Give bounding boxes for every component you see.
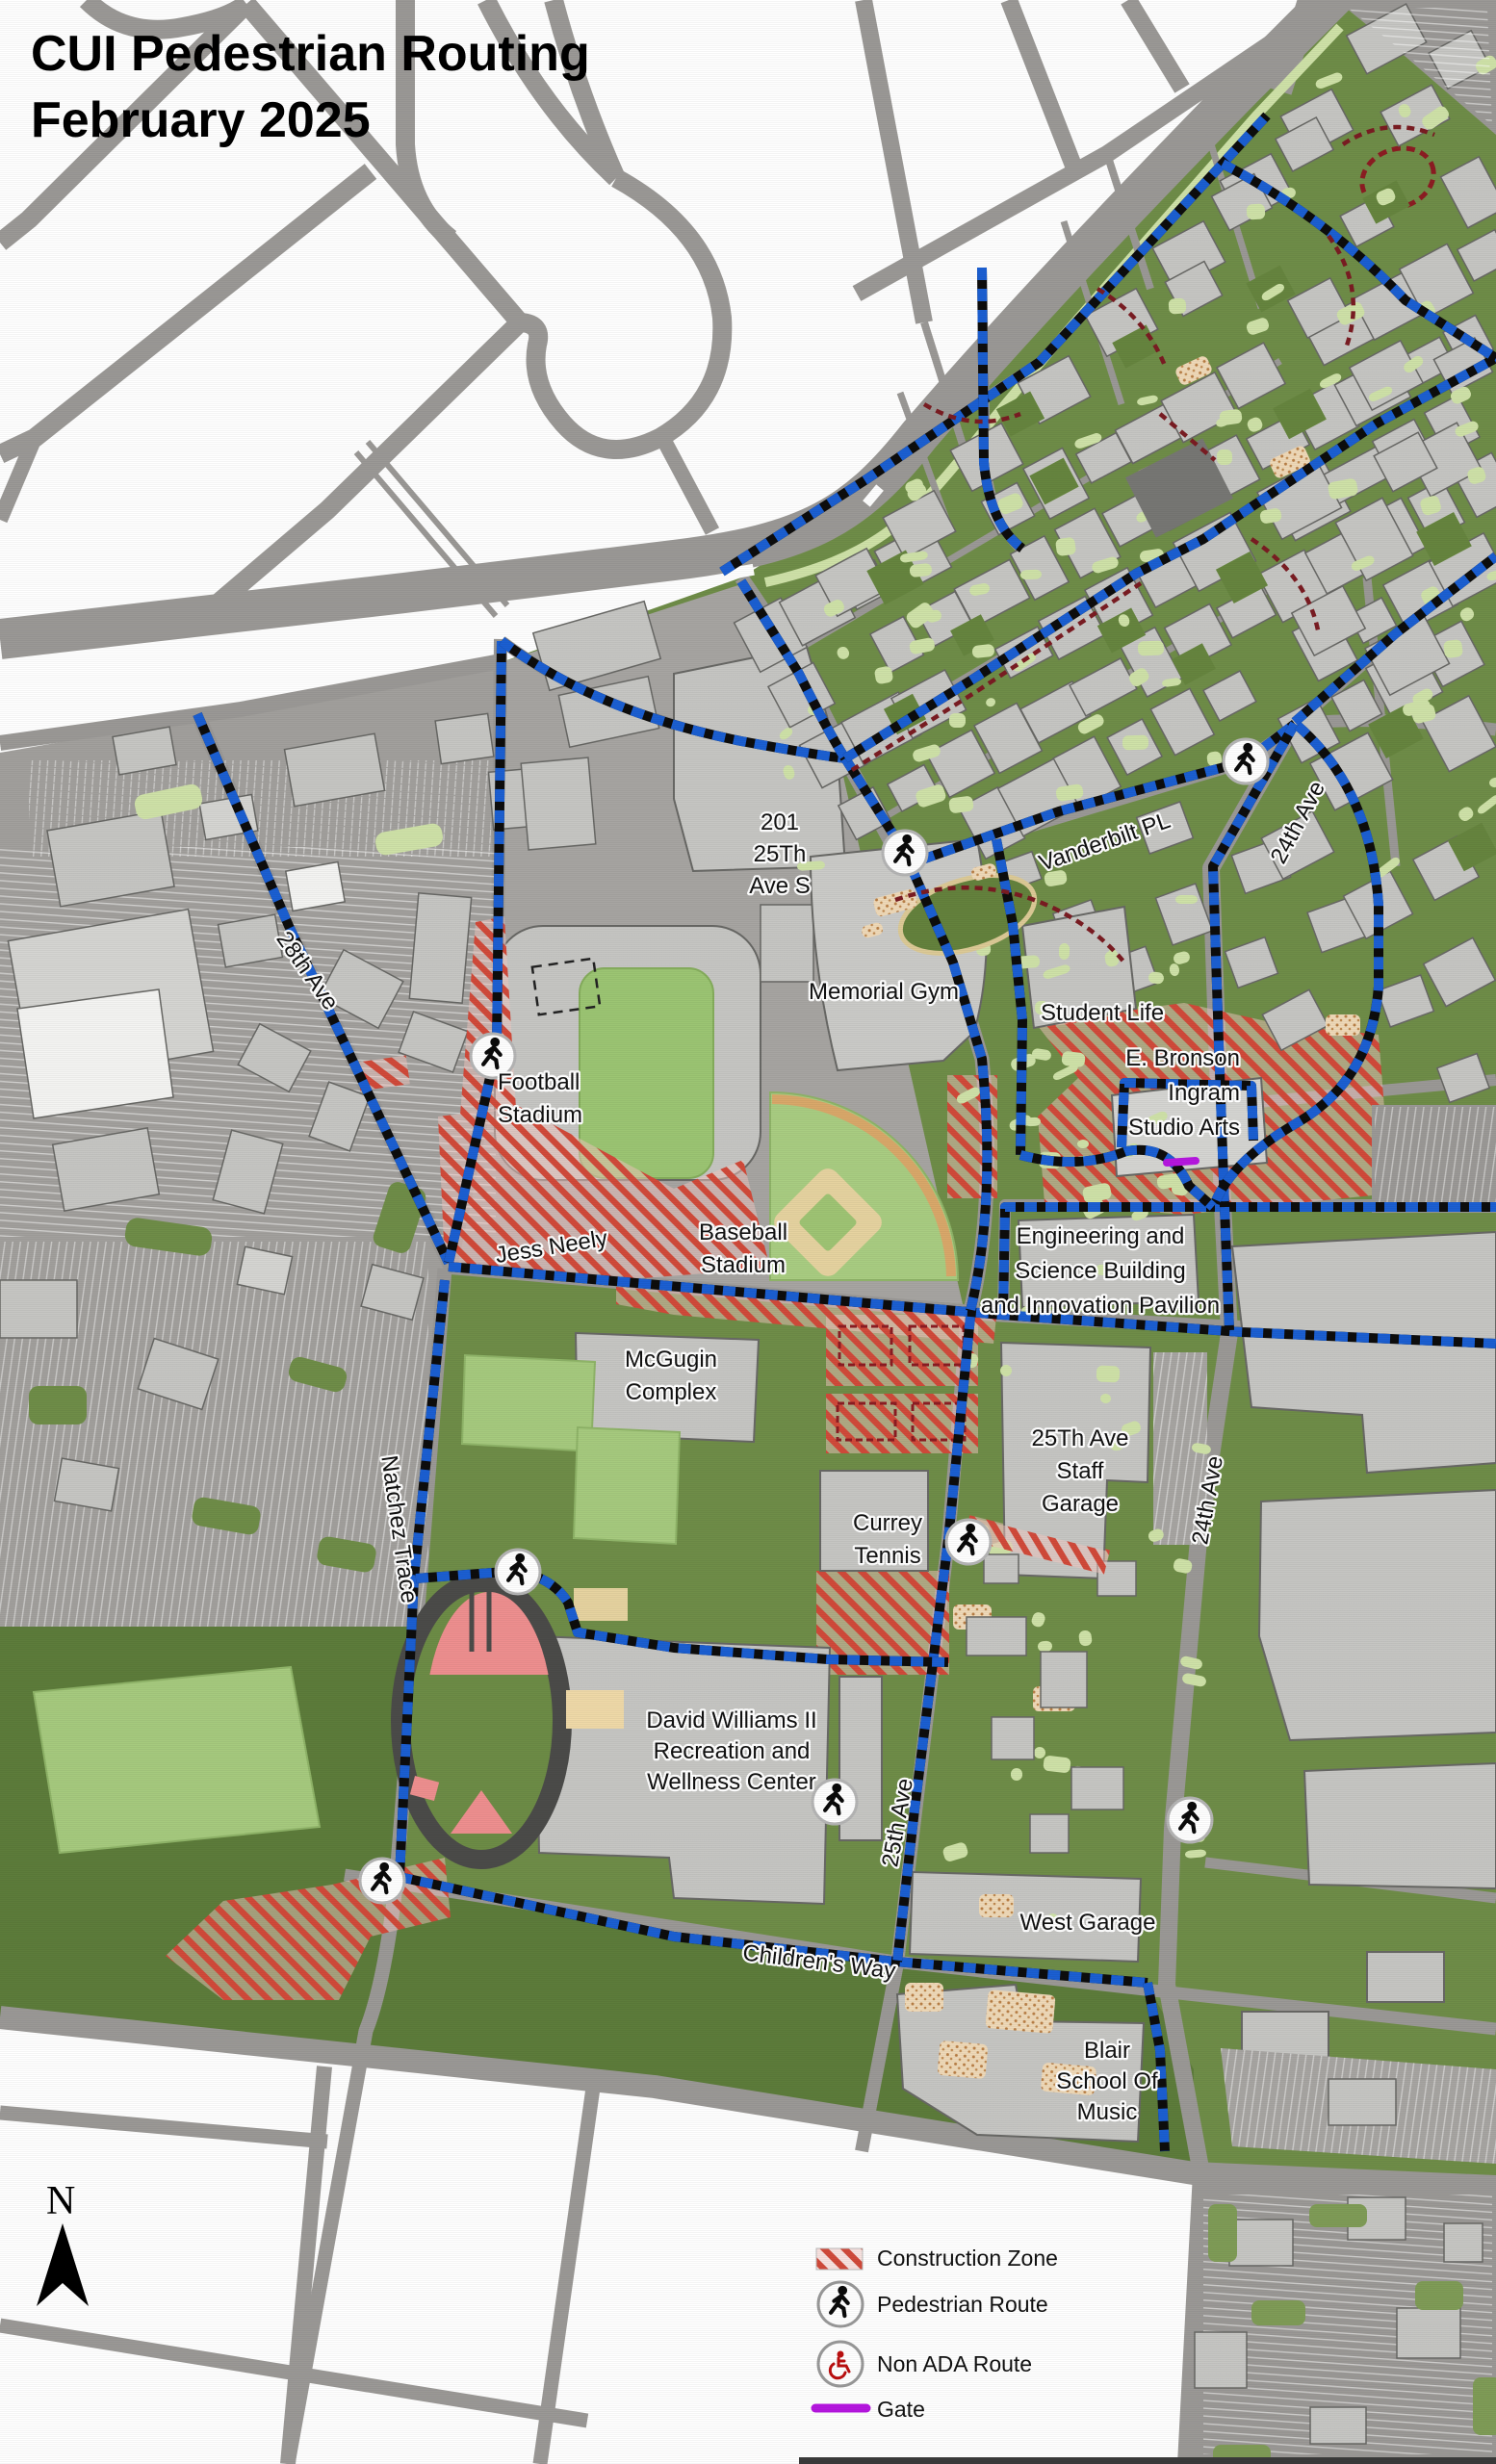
svg-text:Currey: Currey bbox=[853, 1510, 922, 1536]
svg-text:Pedestrian Route: Pedestrian Route bbox=[877, 2292, 1048, 2317]
svg-text:Science Building: Science Building bbox=[1015, 1258, 1185, 1284]
svg-text:Wellness Center: Wellness Center bbox=[647, 1769, 816, 1795]
svg-text:February 2025: February 2025 bbox=[31, 92, 371, 148]
svg-text:Recreation and: Recreation and bbox=[654, 1738, 811, 1764]
svg-text:Memorial Gym: Memorial Gym bbox=[809, 979, 959, 1005]
svg-text:Gate: Gate bbox=[877, 2397, 925, 2422]
svg-text:Ingram: Ingram bbox=[1168, 1080, 1240, 1106]
svg-text:West Garage: West Garage bbox=[1020, 1910, 1156, 1936]
svg-text:CUI Pedestrian Routing: CUI Pedestrian Routing bbox=[31, 26, 590, 82]
svg-text:Student Life: Student Life bbox=[1041, 1000, 1164, 1026]
svg-text:School Of: School Of bbox=[1056, 2068, 1158, 2094]
svg-text:Music: Music bbox=[1077, 2099, 1138, 2125]
svg-text:David Williams II: David Williams II bbox=[646, 1707, 816, 1733]
svg-text:Garage: Garage bbox=[1042, 1491, 1119, 1517]
svg-text:Stadium: Stadium bbox=[498, 1102, 582, 1128]
svg-text:Baseball: Baseball bbox=[699, 1219, 787, 1245]
svg-text:25Th: 25Th bbox=[754, 841, 807, 867]
svg-text:201: 201 bbox=[761, 809, 799, 835]
svg-text:Studio Arts: Studio Arts bbox=[1128, 1115, 1240, 1141]
svg-text:25Th Ave: 25Th Ave bbox=[1032, 1425, 1129, 1451]
svg-text:Engineering and: Engineering and bbox=[1017, 1223, 1185, 1249]
svg-text:McGugin: McGugin bbox=[625, 1347, 717, 1373]
svg-text:N: N bbox=[46, 2179, 75, 2223]
svg-text:E. Bronson: E. Bronson bbox=[1125, 1045, 1240, 1071]
svg-text:Non ADA Route: Non ADA Route bbox=[877, 2351, 1032, 2376]
svg-text:Blair: Blair bbox=[1084, 2038, 1130, 2064]
svg-text:Stadium: Stadium bbox=[701, 1252, 786, 1278]
svg-text:Construction Zone: Construction Zone bbox=[877, 2246, 1058, 2271]
svg-text:Complex: Complex bbox=[626, 1379, 717, 1405]
svg-text:Tennis: Tennis bbox=[854, 1543, 920, 1569]
svg-text:Ave S: Ave S bbox=[749, 873, 811, 899]
svg-text:Football: Football bbox=[498, 1069, 580, 1095]
svg-text:and Innovation Pavilion: and Innovation Pavilion bbox=[981, 1293, 1220, 1319]
svg-text:Staff: Staff bbox=[1057, 1458, 1104, 1484]
